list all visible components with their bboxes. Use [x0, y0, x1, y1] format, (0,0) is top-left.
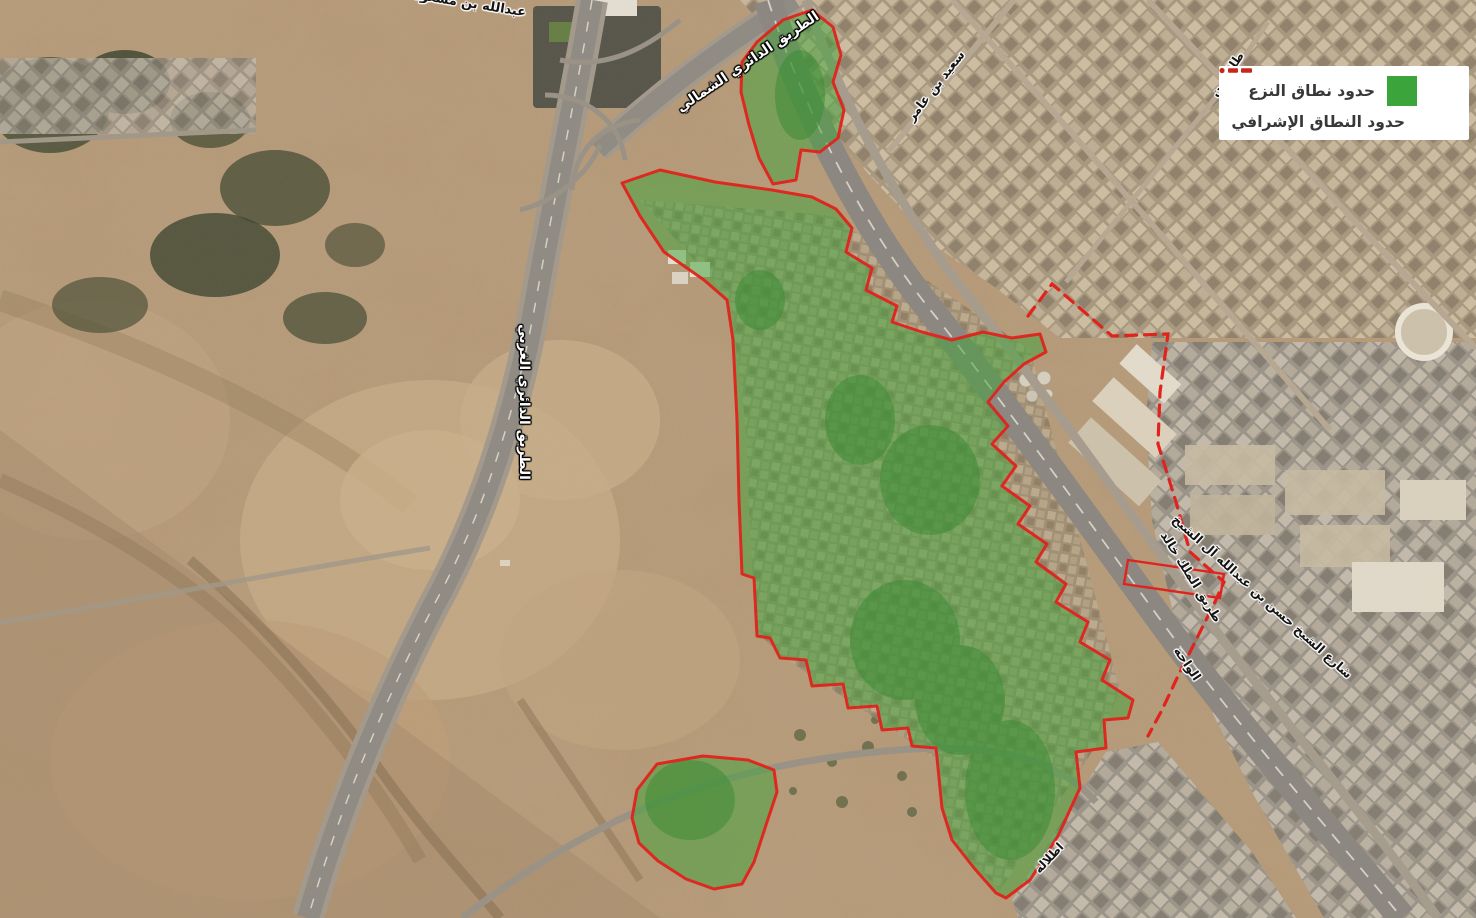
legend-label-expropriation: حدود نطاق النزع	[1248, 82, 1375, 100]
satellite-map-figure: عبدالله بن مسعود الطريق الدائري الشمالي …	[0, 0, 1476, 918]
legend-label-supervisory: حدود النطاق الإشرافي	[1231, 113, 1405, 131]
expropriation-swatch-icon	[1387, 76, 1417, 106]
legend-item-expropriation: حدود نطاق النزع	[1219, 76, 1469, 106]
legend-item-supervisory: حدود النطاق الإشرافي	[1219, 113, 1469, 131]
map-legend: حدود نطاق النزع حدود النطاق الإشرافي	[1219, 66, 1469, 140]
